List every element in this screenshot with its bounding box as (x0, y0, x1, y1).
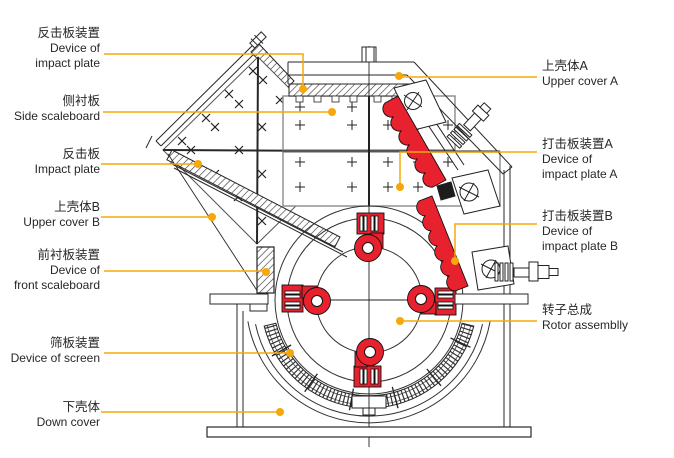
label-en: impact plate (35, 56, 100, 71)
label-en: Device of (14, 263, 100, 278)
label-device-of-impact-plate: 反击板装置 Device of impact plate (35, 26, 100, 71)
label-en: Device of (542, 152, 617, 167)
label-zh: 上壳体A (542, 59, 618, 74)
label-down-cover: 下壳体 Down cover (37, 400, 100, 430)
label-en: Rotor assemblly (542, 318, 628, 333)
label-zh: 下壳体 (37, 400, 100, 415)
label-en: impact plate A (542, 167, 617, 182)
label-zh: 打击板装置B (542, 209, 618, 224)
label-side-scaleboard: 侧衬板 Side scaleboard (14, 94, 100, 124)
label-en: Down cover (37, 415, 100, 430)
label-en: Device of screen (11, 351, 100, 366)
diagram-canvas: 反击板装置 Device of impact plate 侧衬板 Side sc… (0, 0, 674, 458)
label-zh: 反击板 (35, 147, 100, 162)
label-en: impact plate B (542, 239, 618, 254)
label-en: Device of (542, 224, 618, 239)
label-impact-plate: 反击板 Impact plate (35, 147, 100, 177)
label-zh: 反击板装置 (35, 26, 100, 41)
impact-plate-b (417, 196, 468, 291)
label-device-of-impact-plate-b: 打击板装置B Device of impact plate B (542, 209, 618, 254)
label-device-of-screen: 筛板装置 Device of screen (11, 336, 100, 366)
label-upper-cover-b: 上壳体B Upper cover B (23, 200, 100, 230)
label-en: front scaleboard (14, 278, 100, 293)
label-device-of-impact-plate-a: 打击板装置A Device of impact plate A (542, 137, 617, 182)
label-en: Device of (35, 41, 100, 56)
label-upper-cover-a: 上壳体A Upper cover A (542, 59, 618, 89)
label-rotor-assembly: 转子总成 Rotor assemblly (542, 303, 628, 333)
label-zh: 转子总成 (542, 303, 628, 318)
base-plate (207, 427, 531, 437)
label-en: Side scaleboard (14, 109, 100, 124)
label-en: Upper cover B (23, 215, 100, 230)
label-device-of-front-scaleboard: 前衬板装置 Device of front scaleboard (14, 248, 100, 293)
label-en: Upper cover A (542, 74, 618, 89)
label-zh: 侧衬板 (14, 94, 100, 109)
label-zh: 上壳体B (23, 200, 100, 215)
label-en: Impact plate (35, 162, 100, 177)
label-zh: 前衬板装置 (14, 248, 100, 263)
label-zh: 筛板装置 (11, 336, 100, 351)
label-zh: 打击板装置A (542, 137, 617, 152)
